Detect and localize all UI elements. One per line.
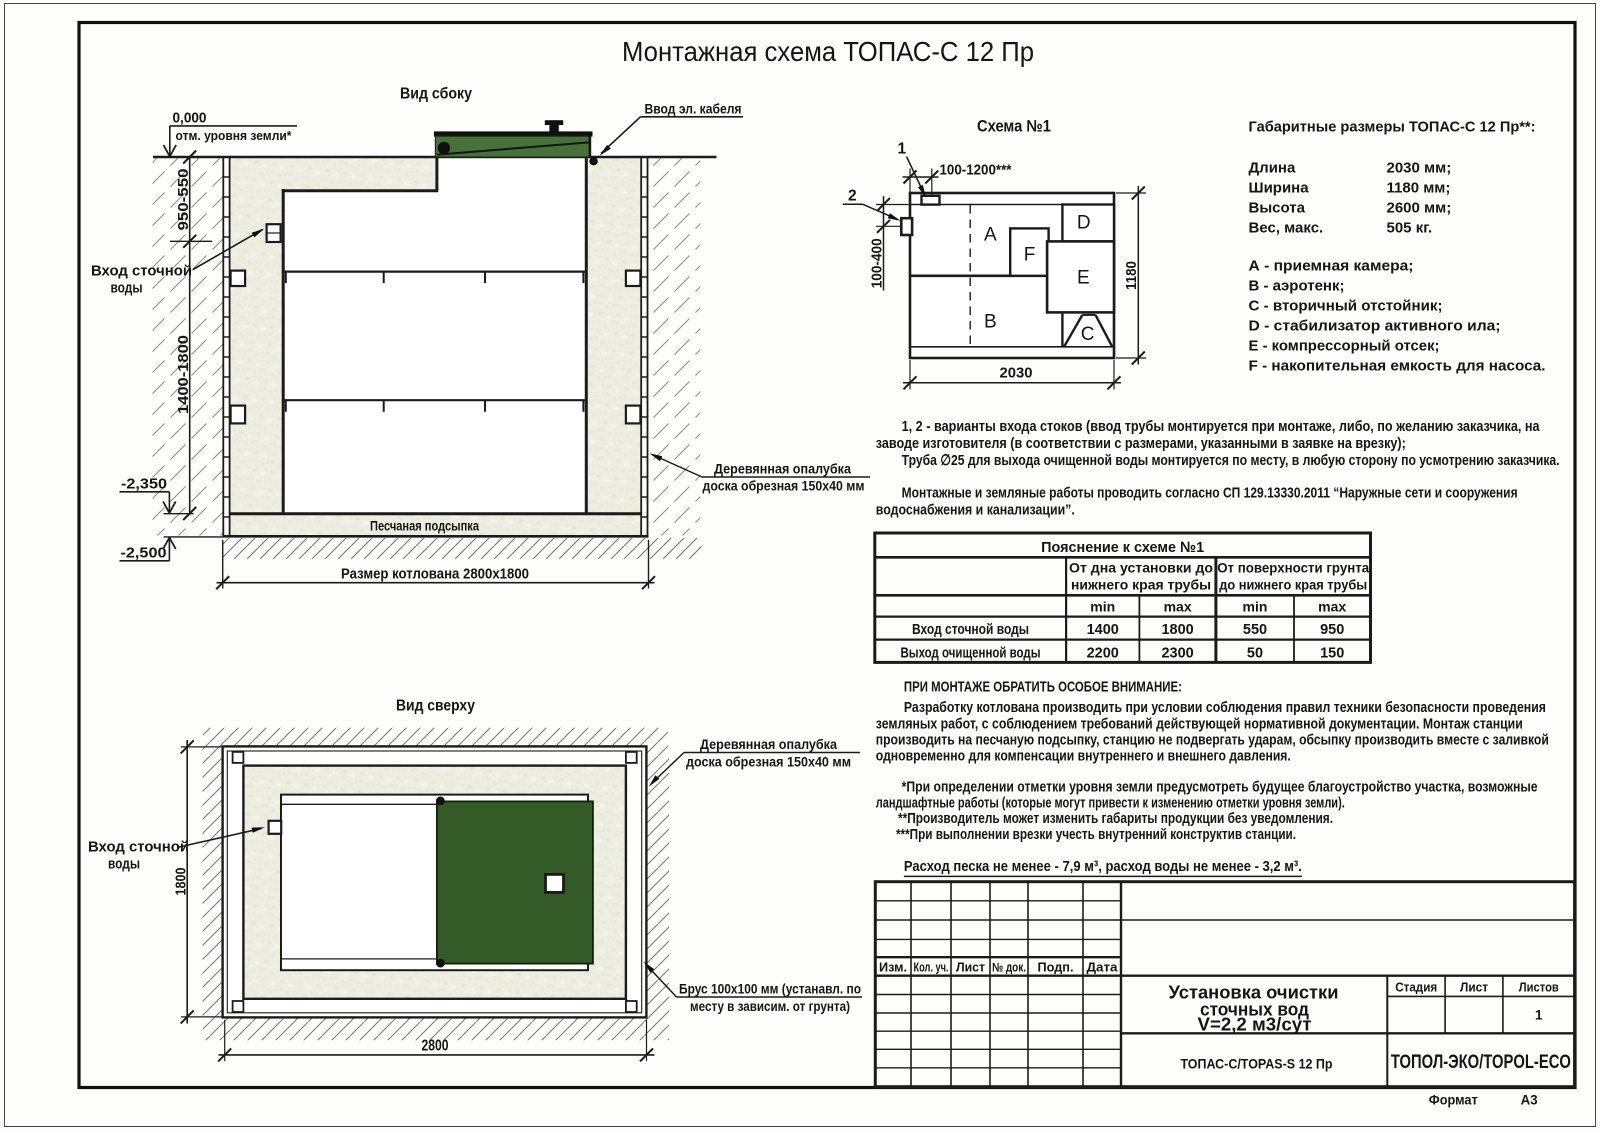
svg-text:1800: 1800 xyxy=(1161,622,1193,638)
svg-text:доска обрезная 150х40 мм: доска обрезная 150х40 мм xyxy=(703,478,865,494)
svg-text:отм. уровня земли*: отм. уровня земли* xyxy=(176,128,293,143)
svg-text:А - приемная камера;: А - приемная камера; xyxy=(1249,258,1414,275)
svg-text:1, 2 - варианты входа стоков: 1, 2 - варианты входа стоков (ввод трубы… xyxy=(902,418,1541,435)
svg-text:Деревянная опалубка: Деревянная опалубка xyxy=(714,461,851,477)
svg-text:100-1200***: 100-1200*** xyxy=(940,163,1012,179)
svg-text:E: E xyxy=(1077,268,1090,289)
svg-text:Листов: Листов xyxy=(1519,981,1559,995)
svg-text:заводе изготовителя (в соответ: заводе изготовителя (в соответствии с ра… xyxy=(876,435,1406,452)
svg-text:Стадия: Стадия xyxy=(1395,981,1437,995)
svg-text:производить на песчаную подсып: производить на песчаную подсыпку, станци… xyxy=(876,732,1549,749)
svg-text:Брус 100х100 мм (устанавл. по: Брус 100х100 мм (устанавл. по xyxy=(679,981,861,997)
svg-text:От дна установки до: От дна установки до xyxy=(1069,560,1213,576)
svg-text:***При выполнении врезки учест: ***При выполнении врезки учесть внутренн… xyxy=(896,826,1296,843)
svg-text:1400-1800: 1400-1800 xyxy=(176,335,192,414)
svg-text:воды: воды xyxy=(111,281,143,297)
svg-text:Габаритные размеры ТОПАС-С 12: Габаритные размеры ТОПАС-С 12 Пр**: xyxy=(1249,119,1536,136)
svg-text:Лист: Лист xyxy=(956,961,985,975)
svg-text:2800: 2800 xyxy=(422,1038,449,1055)
svg-text:0,000: 0,000 xyxy=(173,111,207,127)
svg-text:100-400: 100-400 xyxy=(869,238,885,288)
svg-text:Вес, макс.: Вес, макс. xyxy=(1249,220,1324,237)
svg-text:Вход сточной: Вход сточной xyxy=(88,840,189,856)
svg-text:950-550: 950-550 xyxy=(176,169,192,231)
svg-text:ТОПОЛ-ЭКО/TOPOL-ECO: ТОПОЛ-ЭКО/TOPOL-ECO xyxy=(1391,1052,1571,1073)
svg-text:Вход сточной: Вход сточной xyxy=(91,264,192,280)
svg-text:Песчаная подсыпка: Песчаная подсыпка xyxy=(370,519,479,534)
svg-text:1400: 1400 xyxy=(1087,622,1119,638)
svg-text:Ширина: Ширина xyxy=(1249,180,1310,197)
svg-text:Размер котлована 2800х1800: Размер котлована 2800х1800 xyxy=(341,567,529,583)
svg-text:550: 550 xyxy=(1243,622,1267,638)
svg-text:Выход очищенной воды: Выход очищенной воды xyxy=(901,646,1041,662)
svg-text:A: A xyxy=(984,225,997,246)
svg-text:От поверхности грунта: От поверхности грунта xyxy=(1217,560,1369,576)
svg-text:2: 2 xyxy=(848,188,857,205)
svg-text:1: 1 xyxy=(1535,1008,1543,1023)
svg-text:150: 150 xyxy=(1320,646,1344,662)
svg-text:до нижнего края трубы: до нижнего края трубы xyxy=(1219,577,1367,593)
svg-text:Е - компрессорный отсек;: Е - компрессорный отсек; xyxy=(1249,338,1440,355)
svg-text:F: F xyxy=(1024,245,1036,266)
svg-text:D: D xyxy=(1077,213,1091,234)
svg-text:Монтажная схема ТОПАС-С 12 Пр: Монтажная схема ТОПАС-С 12 Пр xyxy=(622,36,1034,67)
svg-text:Разработку котлована производи: Разработку котлована производить при усл… xyxy=(904,699,1546,716)
svg-text:max: max xyxy=(1164,599,1192,615)
svg-text:Деревянная опалубка: Деревянная опалубка xyxy=(700,736,837,752)
svg-text:2300: 2300 xyxy=(1161,646,1193,662)
svg-text:950: 950 xyxy=(1320,622,1344,638)
svg-text:одновременно для компенсации в: одновременно для компенсации внутреннего… xyxy=(876,748,1291,765)
svg-text:V=2,2 м3/сут: V=2,2 м3/сут xyxy=(1198,1015,1312,1035)
svg-text:max: max xyxy=(1318,599,1346,615)
svg-text:min: min xyxy=(1090,599,1115,615)
svg-text:Высота: Высота xyxy=(1249,200,1306,217)
svg-text:Длина: Длина xyxy=(1249,160,1296,177)
svg-text:Формат: Формат xyxy=(1429,1092,1478,1108)
svg-text:Расход песка не менее - 7,9 м³: Расход песка не менее - 7,9 м³, расход в… xyxy=(904,858,1302,875)
svg-text:В - аэротенк;: В - аэротенк; xyxy=(1249,278,1345,295)
svg-text:Вид сверху: Вид сверху xyxy=(396,698,475,715)
svg-text:2600 мм;: 2600 мм; xyxy=(1387,200,1452,217)
svg-text:ландшафтные работы (которые мо: ландшафтные работы (которые могут привес… xyxy=(876,795,1345,812)
svg-text:-2,350: -2,350 xyxy=(121,477,167,493)
svg-text:А3: А3 xyxy=(1521,1092,1538,1108)
svg-text:ПРИ МОНТАЖЕ ОБРАТИТЬ ОСОБОЕ ВН: ПРИ МОНТАЖЕ ОБРАТИТЬ ОСОБОЕ ВНИМАНИЕ: xyxy=(904,679,1182,696)
svg-text:C: C xyxy=(1081,324,1095,345)
svg-text:1: 1 xyxy=(898,141,907,158)
svg-text:D - стабилизатор активного ила: D - стабилизатор активного ила; xyxy=(1249,318,1501,335)
svg-text:F - накопительная емкость для: F - накопительная емкость для насоса. xyxy=(1249,358,1546,375)
svg-text:Вход сточной воды: Вход сточной воды xyxy=(912,622,1029,638)
svg-text:водоснабжения и канализации”.: водоснабжения и канализации”. xyxy=(876,502,1075,519)
svg-text:Лист: Лист xyxy=(1460,981,1488,995)
svg-text:Монтажные и земляные работы пр: Монтажные и земляные работы проводить со… xyxy=(902,485,1518,502)
svg-text:Кол. уч.: Кол. уч. xyxy=(914,961,949,975)
svg-text:1180 мм;: 1180 мм; xyxy=(1387,180,1451,197)
svg-text:2030: 2030 xyxy=(1000,366,1033,382)
svg-text:50: 50 xyxy=(1247,646,1263,662)
svg-text:2030 мм;: 2030 мм; xyxy=(1387,160,1452,177)
svg-text:Схема №1: Схема №1 xyxy=(977,118,1051,136)
svg-text:1800: 1800 xyxy=(174,868,190,896)
svg-text:B: B xyxy=(984,312,997,333)
svg-text:воды: воды xyxy=(108,857,140,873)
svg-text:*При определении отметки уровн: *При определении отметки уровня земли пр… xyxy=(902,779,1538,796)
svg-text:2200: 2200 xyxy=(1087,646,1119,662)
svg-text:ТОПАС-С/TOPAS-S 12 Пр: ТОПАС-С/TOPAS-S 12 Пр xyxy=(1181,1056,1333,1072)
svg-text:Пояснение к схеме №1: Пояснение к схеме №1 xyxy=(1041,539,1204,556)
svg-text:месту в зависим. от грунта): месту в зависим. от грунта) xyxy=(690,998,850,1014)
svg-text:С - вторичный отстойник;: С - вторичный отстойник; xyxy=(1249,298,1443,315)
svg-text:min: min xyxy=(1243,599,1268,615)
svg-text:Ввод эл. кабеля: Ввод эл. кабеля xyxy=(645,101,742,117)
svg-text:нижнего края трубы: нижнего края трубы xyxy=(1071,577,1211,593)
svg-text:Изм.: Изм. xyxy=(879,961,907,975)
svg-text:№ док.: № док. xyxy=(992,961,1026,975)
svg-text:Вид сбоку: Вид сбоку xyxy=(400,86,472,103)
svg-text:Дата: Дата xyxy=(1087,961,1119,975)
svg-text:Подп.: Подп. xyxy=(1038,961,1074,975)
svg-text:земляных работ, с соблюдением: земляных работ, с соблюдением требований… xyxy=(876,716,1523,733)
svg-text:-2,500: -2,500 xyxy=(121,546,167,562)
svg-text:1180: 1180 xyxy=(1124,261,1140,290)
svg-text:Труба ∅25 для выхода очищенной: Труба ∅25 для выхода очищенной воды монт… xyxy=(902,452,1560,469)
svg-text:505 кг.: 505 кг. xyxy=(1387,220,1433,237)
svg-text:**Производитель может изменить: **Производитель может изменить габариты … xyxy=(898,810,1333,827)
svg-text:доска обрезная 150х40 мм: доска обрезная 150х40 мм xyxy=(686,754,851,770)
